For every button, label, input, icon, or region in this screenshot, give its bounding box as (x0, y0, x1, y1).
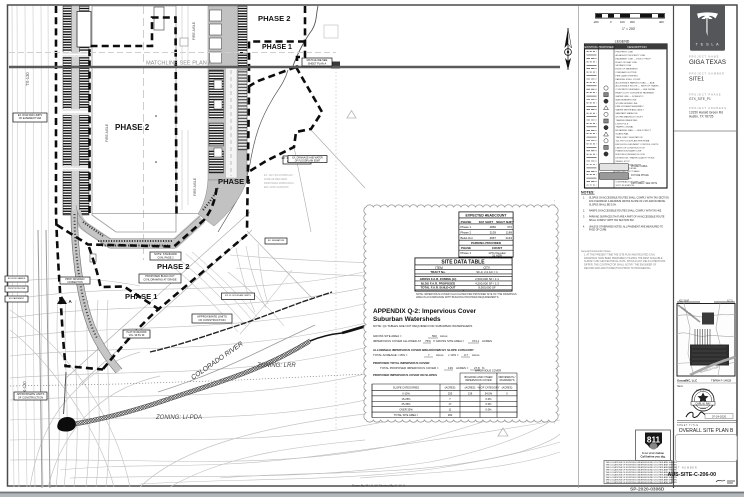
svg-text:4667: 4667 (490, 236, 497, 240)
svg-text:TRACT No.: TRACT No. (430, 270, 445, 274)
svg-text:x 10% =: x 10% = (448, 353, 459, 357)
svg-text:EASEMENT LINE — EXIST / PROP: EASEMENT LINE — EXIST / PROP (616, 57, 652, 60)
svg-text:FIRE HYDRANT ASSEMBLY: FIRE HYDRANT ASSEMBLY (616, 105, 645, 108)
svg-text:PHASE BOUNDARY LINE: PHASE BOUNDARY LINE (616, 150, 642, 153)
svg-text:EX PAVEMENT: EX PAVEMENT (9, 297, 25, 300)
svg-text:PROPOSED TOTAL IMPERVIOUS COVE: PROPOSED TOTAL IMPERVIOUS COVER (373, 361, 430, 365)
svg-text:PHASE: PHASE (461, 220, 472, 224)
svg-text:139: 139 (448, 366, 453, 370)
svg-text:Phase 2: Phase 2 (461, 230, 472, 234)
svg-text:OF CONSTRUCTION: OF CONSTRUCTION (18, 395, 43, 399)
svg-text:ZONING: LI-PDA: ZONING: LI-PDA (155, 415, 202, 421)
svg-text:PROP. DRIVEWAY: PROP. DRIVEWAY (65, 278, 85, 281)
svg-text:4,200,000 SF / 1:3: 4,200,000 SF / 1:3 (475, 281, 499, 285)
svg-text:2139: 2139 (490, 230, 497, 234)
svg-text:SLOPE CATEGORIES: SLOPE CATEGORIES (393, 386, 419, 390)
svg-text:FIRM PANEL 48453C0610J: FIRM PANEL 48453C0610J (264, 182, 294, 185)
svg-text:SLOPES SHALL BE 5.0%.: SLOPES SHALL BE 5.0%. (589, 203, 617, 206)
svg-text:Suburban Watersheds: Suburban Watersheds (373, 316, 441, 323)
svg-text:GIGA TEXAS: GIGA TEXAS (689, 59, 726, 66)
svg-text:FIRE LANE STRIPING: FIRE LANE STRIPING (616, 74, 639, 77)
svg-text:FIRE AISLE: FIRE AISLE (193, 177, 197, 196)
svg-text:(ACRES): (ACRES) (445, 386, 456, 390)
svg-text:MATCHLINE SEE PLAN A: MATCHLINE SEE PLAN A (146, 61, 212, 67)
svg-text:ACCESSIBLE PARKING STALL — ADA: ACCESSIBLE PARKING STALL — ADA (616, 81, 655, 84)
svg-text:4.: 4. (583, 226, 585, 228)
svg-text:GROSS SITE AREA =: GROSS SITE AREA = (373, 334, 402, 338)
svg-text:139: 139 (468, 391, 473, 395)
svg-text:0.0%: 0.0% (486, 397, 493, 401)
svg-text:AUS-SITE-C-206-00: AUS-SITE-C-206-00 (668, 472, 717, 478)
svg-text:PHASE 2: PHASE 2 (258, 14, 291, 23)
svg-text:2,500,000 SF / 1:1: 2,500,000 SF / 1:1 (475, 277, 499, 281)
svg-text:54.5%: 54.5% (485, 391, 493, 395)
svg-text:PROP ROW LINE: PROP ROW LINE (8, 288, 26, 290)
svg-text:ROADWAYS: ROADWAYS (500, 378, 515, 382)
svg-text:PHASE 1: PHASE 1 (125, 292, 158, 301)
svg-text:Drawn By: M.L.H. W. Checke: Drawn By: M.L.H. W. Checked By: K. W. H (352, 484, 405, 488)
svg-text:EDGE OF PAVEMENT: EDGE OF PAVEMENT (616, 68, 639, 71)
svg-text:500: 500 (432, 334, 437, 338)
svg-text:8,500,000 SF: 8,500,000 SF (478, 286, 496, 290)
svg-text:374.1: 374.1 (472, 339, 480, 343)
svg-text:0.0%: 0.0% (486, 402, 493, 406)
svg-text:TRANSFORMER PAD: TRANSFORMER PAD (616, 119, 638, 122)
svg-text:KEY MAP: KEY MAP (679, 300, 690, 303)
svg-text:(ACRES): (ACRES) (465, 386, 476, 390)
svg-text:31 ADA: 31 ADA (492, 254, 502, 258)
svg-text:-200: -200 (593, 20, 599, 24)
svg-text:OVER 35%: OVER 35% (399, 408, 413, 412)
svg-text:3.: 3. (583, 217, 585, 219)
svg-text:Acres: Acres (440, 334, 448, 338)
svg-text:DAY SHIFT: DAY SHIFT (479, 220, 494, 224)
svg-text:0.7: 0.7 (464, 353, 468, 357)
svg-text:403.3 MAXIMUM. A MAXIMUM CROSS: 403.3 MAXIMUM. A MAXIMUM CROSS SLOPE OF … (589, 200, 666, 203)
svg-text:EX ROW VARIES: EX ROW VARIES (8, 277, 26, 280)
svg-text:Acres: Acres (472, 353, 480, 357)
svg-text:T E S L A: T E S L A (696, 42, 720, 47)
svg-text:IMPERVIOUS COVER: IMPERVIOUS COVER (465, 378, 491, 382)
svg-text:SF-4; 2.2 AC = 1: SF-4; 2.2 AC = 1 (476, 270, 498, 274)
svg-text:OF EASEMENT VAR: OF EASEMENT VAR (19, 117, 42, 120)
svg-text:HEAVY DUTY CONCRETE PAVEMENT: HEAVY DUTY CONCRETE PAVEMENT (616, 92, 656, 95)
svg-text:APPENDIX Q-2: Impervious Cover: APPENDIX Q-2: Impervious Cover (373, 308, 476, 315)
svg-text:N.T.S.: N.T.S. (727, 301, 734, 303)
svg-text:EX. 100-YR FLOODPLAIN: EX. 100-YR FLOODPLAIN (264, 174, 293, 177)
svg-text:AREA IN ACCORDANCE WITH BUILDI: AREA IN ACCORDANCE WITH BUILDING PROVIDE… (416, 296, 499, 299)
svg-text:1" = 200': 1" = 200' (622, 27, 636, 31)
svg-text:EXPECTED HEADCOUNT: EXPECTED HEADCOUNT (466, 214, 508, 218)
svg-text:GTX_SITE_P1: GTX_SITE_P1 (689, 97, 711, 101)
svg-text:TOTAL F.A.R. BUILD-OUT: TOTAL F.A.R. BUILD-OUT (421, 286, 456, 290)
svg-text:PARKING PROVIDED: PARKING PROVIDED (471, 241, 502, 245)
svg-text:ZONE AE PER FEMA: ZONE AE PER FEMA (264, 178, 288, 181)
svg-text:ZONING: LRR: ZONING: LRR (256, 363, 296, 369)
svg-text:OF CONSTRUCTION: OF CONSTRUCTION (198, 318, 225, 322)
svg-text:ACCESSIBLE ROUTE — PATH OF T: ACCESSIBLE ROUTE — PATH OF TRAVEL (616, 85, 660, 88)
svg-text:IMPERVIOUS COVER ALLOWED AT: IMPERVIOUS COVER ALLOWED AT (373, 339, 421, 343)
svg-text:COUNT: COUNT (492, 246, 503, 250)
svg-text:EX. FLOODPLAIN LIMITS: EX. FLOODPLAIN LIMITS (225, 294, 251, 297)
svg-text:FACE OF CURB.: FACE OF CURB. (589, 229, 607, 232)
svg-text:NOTES:: NOTES: (581, 191, 595, 195)
svg-text:SHALL COMPLY WITH TAS SECTION: SHALL COMPLY WITH TAS SECTION 502. (589, 219, 635, 222)
svg-text:Phase 1: Phase 1 (461, 225, 472, 229)
svg-text:EFF. DATE 01/06/2016: EFF. DATE 01/06/2016 (264, 186, 289, 189)
svg-text:2143: 2143 (506, 236, 513, 240)
svg-text:Call before you dig.: Call before you dig. (641, 455, 666, 459)
svg-text:75%: 75% (425, 339, 431, 343)
svg-text:CARL W. RAY: CARL W. RAY (695, 403, 711, 406)
svg-text:PHASE 1 AREA: PHASE 1 AREA (631, 165, 648, 168)
svg-text:GROSS F.A.R. ZONING (LI): GROSS F.A.R. ZONING (LI) (420, 277, 457, 281)
svg-text:SETBACK LINE: SETBACK LINE (616, 64, 632, 67)
svg-text:SITE DATA TABLE: SITE DATA TABLE (441, 260, 485, 266)
svg-text:EX. MIGRATION: EX. MIGRATION (268, 239, 285, 242)
svg-text:RAMPS ON ACCESSIBLE ROUTES SHA: RAMPS ON ACCESSIBLE ROUTES SHALL COMPLY … (589, 210, 662, 213)
svg-text:CIVIL PAGE 2: CIVIL PAGE 2 (157, 255, 174, 259)
svg-text:PHASE: PHASE (461, 246, 471, 250)
svg-text:Phase 1: Phase 1 (461, 251, 472, 255)
svg-text:Know what's below.: Know what's below. (642, 452, 665, 455)
svg-text:STORM MANHOLE / INLET: STORM MANHOLE / INLET (616, 116, 644, 119)
svg-text:1189: 1189 (506, 230, 513, 234)
svg-text:400: 400 (659, 20, 664, 24)
svg-text:SP-2020-0306D: SP-2020-0306D (630, 487, 665, 493)
svg-text:IMPERVIOUS COVER: IMPERVIOUS COVER (475, 369, 501, 373)
svg-text:PROPOSED IMPERVIOUS COVER ON S: PROPOSED IMPERVIOUS COVER ON SLOPES (373, 373, 437, 377)
svg-text:THE LOCATIONS OF EXISTING UNDE: THE LOCATIONS OF EXISTING UNDERGROUND UT… (606, 481, 678, 484)
svg-text:UNLESS OTHERWISE NOTED, ALL PA: UNLESS OTHERWISE NOTED, ALL PAVEMENT ARE… (589, 225, 663, 228)
svg-text:100: 100 (620, 20, 625, 24)
svg-text:ACRES: ACRES (482, 339, 492, 343)
svg-text:SHEET PLAN A: SHEET PLAN A (308, 61, 327, 65)
svg-text:PARKING STALL COUNT: PARKING STALL COUNT (616, 78, 642, 81)
svg-text:25-35%: 25-35% (402, 402, 412, 406)
svg-text:EROSION & SEDIMENT CONTROL LIM: EROSION & SEDIMENT CONTROL LIMITS (616, 144, 659, 146)
svg-text:ACRES =: ACRES = (456, 366, 469, 370)
svg-text:FIRE AISLE: FIRE AISLE (192, 21, 196, 40)
svg-text:DESCRIPTION: DESCRIPTION (627, 45, 646, 49)
svg-text:FUTURE PHASE: FUTURE PHASE (631, 174, 649, 177)
svg-text:LIMITS OF CONSTRUCTION: LIMITS OF CONSTRUCTION (616, 147, 645, 149)
svg-text:Austin, TX 78725: Austin, TX 78725 (689, 115, 714, 119)
svg-text:ALLOWABLE IMPERVIOUS COVER BRE: ALLOWABLE IMPERVIOUS COVER BREAKDOWN BY … (373, 348, 474, 352)
svg-text:CONCRETE SIDEWALK — SEE DET: CONCRETE SIDEWALK — SEE DETAIL (616, 88, 657, 91)
svg-text:BUILDING AND OTHER: BUILDING AND OTHER (464, 375, 492, 379)
svg-text:NOTE: Q4 TABLES ARE NOT REQUIR: NOTE: Q4 TABLES ARE NOT REQUIRED FOR SUB… (373, 324, 472, 328)
svg-text:NIGHT SHIFT: NIGHT SHIFT (496, 220, 514, 224)
svg-text:SHEET NUMBER: SHEET NUMBER (668, 467, 697, 470)
svg-text:LIMIT AREA - SEE NOTE: LIMIT AREA - SEE NOTE (631, 182, 658, 185)
svg-text:07-24-2020: 07-24-2020 (712, 415, 727, 419)
svg-text:SHEET TITLE: SHEET TITLE (677, 424, 699, 427)
svg-text:FIRE AISLE: FIRE AISLE (105, 123, 109, 142)
svg-text:EXISTING: EXISTING (584, 45, 597, 49)
svg-text:OF FLOODPLAIN ESMT: OF FLOODPLAIN ESMT (295, 159, 321, 162)
svg-text:SEAL: SEAL (677, 385, 684, 388)
svg-text:290: 290 (448, 413, 453, 417)
svg-text:CURB AND GUTTER: CURB AND GUTTER (616, 71, 637, 74)
svg-text:RECORD AND AWAIT DIRECTION PRI: RECORD AND AWAIT DIRECTION PRIOR TO PROC… (584, 267, 652, 270)
svg-text:2.: 2. (583, 211, 585, 213)
svg-text:SITE1: SITE1 (689, 77, 704, 83)
svg-text:TREE LINE / VEGETATION: TREE LINE / VEGETATION (616, 136, 643, 139)
svg-text:RETAINING WALL — SEE STRUCT: RETAINING WALL — SEE STRUCT (616, 129, 652, 132)
svg-text:CONNECTION: CONNECTION (67, 282, 83, 284)
svg-text:811: 811 (647, 436, 661, 445)
svg-text:GanzaINC, LLC: GanzaINC, LLC (677, 379, 697, 383)
svg-text:PHASE 3: PHASE 3 (218, 177, 251, 186)
svg-text:Acres: Acres (436, 353, 444, 357)
svg-text:PROPERTY LINE: PROPERTY LINE (616, 52, 634, 54)
svg-text:LIGHT POLE: LIGHT POLE (616, 123, 629, 125)
svg-text:TOTAL SITE AREA =: TOTAL SITE AREA = (394, 413, 419, 417)
svg-text:WASTEWATER LINE: WASTEWATER LINE (616, 98, 637, 101)
svg-text:SLOPES ON ACCESSIBLE ROUTES SH: SLOPES ON ACCESSIBLE ROUTES SHALL COMPLY… (589, 197, 669, 200)
svg-text:BUILDING FINISHED FLOOR: BUILDING FINISHED FLOOR (616, 154, 646, 156)
svg-text:TOTAL PROPOSED IMPERVIOUS COVE: TOTAL PROPOSED IMPERVIOUS COVER = (380, 366, 439, 370)
svg-text:1860: 1860 (490, 225, 497, 229)
svg-text:WATER LINE — DOMESTIC: WATER LINE — DOMESTIC (616, 95, 644, 98)
svg-text:PHASE 2: PHASE 2 (157, 262, 190, 271)
svg-text:372: 372 (507, 225, 512, 229)
svg-text:X GROSS SITE AREA =: X GROSS SITE AREA = (433, 339, 465, 343)
svg-text:ADJACENT PROPERTY LINE: ADJACENT PROPERTY LINE (616, 54, 646, 57)
svg-text:100-YR FLOODPLAIN PER FEMA: 100-YR FLOODPLAIN PER FEMA (616, 139, 650, 142)
svg-text:PLAT OF RECORD: PLAT OF RECORD (127, 331, 147, 334)
svg-text:TOTAL ACREAGE >15% =: TOTAL ACREAGE >15% = (373, 353, 408, 357)
svg-text:255: 255 (448, 391, 453, 395)
svg-text:0.0%: 0.0% (486, 408, 493, 412)
svg-text:1.: 1. (583, 198, 585, 200)
svg-text:TRAFFIC SIGNAL: TRAFFIC SIGNAL (616, 126, 635, 129)
svg-text:GUARD RAIL: GUARD RAIL (616, 133, 630, 136)
svg-text:STORM SEWER LINE: STORM SEWER LINE (616, 103, 639, 105)
svg-text:CIVIL DRAWING AT GRADE: CIVIL DRAWING AT GRADE (143, 277, 176, 281)
svg-text:WHEEL STOP: WHEEL STOP (616, 161, 631, 163)
svg-text:113936: 113936 (700, 408, 706, 410)
svg-text:PHASE 2: PHASE 2 (115, 123, 150, 132)
svg-text:SANITARY MANHOLE: SANITARY MANHOLE (616, 112, 639, 115)
svg-text:Build-Out: Build-Out (461, 236, 473, 240)
svg-text:DRIVEWAYS /: DRIVEWAYS / (499, 375, 516, 379)
svg-text:DETENTION / WATER QUALITY: DETENTION / WATER QUALITY POND (616, 157, 655, 160)
svg-text:TBPE# F-14928: TBPE# F-14928 (711, 379, 731, 383)
svg-text:WATER METER AND VAULT: WATER METER AND VAULT (616, 109, 645, 112)
svg-text:(ACRES): (ACRES) (502, 386, 513, 390)
svg-text:RIGHT-OF-WAY LINE: RIGHT-OF-WAY LINE (616, 61, 638, 64)
svg-text:PHASE 1: PHASE 1 (262, 44, 292, 51)
svg-text:EX. DRAINAGE AND WATER: EX. DRAINAGE AND WATER (292, 156, 323, 159)
svg-text:% OF CATEGORY: % OF CATEGORY (478, 386, 500, 390)
svg-text:VOL. 99 PG 99: VOL. 99 PG 99 (129, 335, 145, 337)
svg-text:PROJECT NUMBER: PROJECT NUMBER (689, 73, 725, 76)
svg-text:LEGEND: LEGEND (615, 40, 630, 44)
svg-text:15-25%: 15-25% (402, 397, 412, 401)
svg-text:OVERALL SITE PLAN B: OVERALL SITE PLAN B (679, 428, 734, 434)
svg-text:STATE OF TEXAS: STATE OF TEXAS (696, 389, 711, 392)
svg-text:PARKING SURFACES THAT ARE A PA: PARKING SURFACES THAT ARE A PART OF AN A… (589, 216, 665, 219)
svg-text:200: 200 (630, 20, 635, 24)
svg-text:BLDG F.A.R. PROPOSED: BLDG F.A.R. PROPOSED (421, 281, 455, 285)
svg-text:0-15%: 0-15% (402, 391, 410, 395)
svg-text:PROPOSED: PROPOSED (598, 45, 614, 49)
svg-text:General Construction Notes:: General Construction Notes: (581, 250, 611, 253)
svg-text:TX-130: TX-130 (25, 72, 30, 86)
